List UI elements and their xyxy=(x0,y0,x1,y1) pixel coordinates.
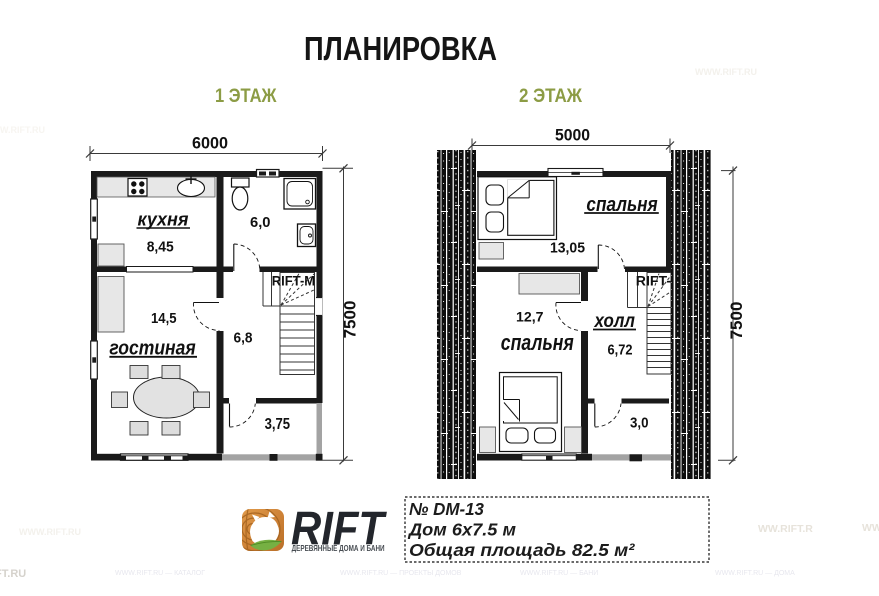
svg-text:6,8: 6,8 xyxy=(234,331,253,347)
svg-text:№ DM-13: № DM-13 xyxy=(409,499,484,519)
svg-text:Общая площадь 82.5 м²: Общая площадь 82.5 м² xyxy=(409,540,636,560)
svg-text:2 ЭТАЖ: 2 ЭТАЖ xyxy=(519,85,582,107)
svg-text:6,0: 6,0 xyxy=(250,215,271,231)
svg-text:спальня: спальня xyxy=(501,330,574,355)
svg-text:WWW.RIFT.RU — БАНИ: WWW.RIFT.RU — БАНИ xyxy=(520,570,598,577)
svg-text:RIFT-M: RIFT-M xyxy=(272,273,315,289)
svg-text:WWW.RIFT.RU — ДОМА: WWW.RIFT.RU — ДОМА xyxy=(715,570,795,577)
svg-text:W.RIFT.RU: W.RIFT.RU xyxy=(0,125,45,135)
svg-text:IFT.RU: IFT.RU xyxy=(0,568,26,580)
svg-text:13,05: 13,05 xyxy=(550,240,585,256)
svg-text:6,72: 6,72 xyxy=(608,342,633,358)
svg-text:7500: 7500 xyxy=(727,302,746,340)
svg-text:WW: WW xyxy=(862,522,879,534)
svg-text:кухня: кухня xyxy=(138,209,189,230)
svg-text:3,0: 3,0 xyxy=(630,416,649,432)
svg-text:Дом 6х7.5 м: Дом 6х7.5 м xyxy=(407,520,516,540)
svg-text:WWW.RIFT.RU — ПРОЕКТЫ ДОМОВ: WWW.RIFT.RU — ПРОЕКТЫ ДОМОВ xyxy=(340,570,462,577)
svg-text:ДЕРЕВЯННЫЕ ДОМА И БАНИ: ДЕРЕВЯННЫЕ ДОМА И БАНИ xyxy=(292,543,385,553)
svg-text:WWW.RIFT.RU: WWW.RIFT.RU xyxy=(19,527,81,537)
svg-text:5000: 5000 xyxy=(555,126,590,145)
svg-text:14,5: 14,5 xyxy=(151,311,177,327)
svg-text:1 ЭТАЖ: 1 ЭТАЖ xyxy=(215,85,277,107)
svg-text:ПЛАНИРОВКА: ПЛАНИРОВКА xyxy=(304,30,497,67)
svg-text:WWW.RIFT.RU — КАТАЛОГ: WWW.RIFT.RU — КАТАЛОГ xyxy=(115,570,205,577)
svg-text:8,45: 8,45 xyxy=(147,239,174,255)
svg-text:WW.RIFT.R: WW.RIFT.R xyxy=(758,523,813,535)
svg-text:7500: 7500 xyxy=(341,301,360,339)
svg-text:12,7: 12,7 xyxy=(516,309,544,325)
svg-text:6000: 6000 xyxy=(192,134,228,153)
svg-text:WWW.RIFT.RU: WWW.RIFT.RU xyxy=(695,67,757,77)
svg-text:3,75: 3,75 xyxy=(265,416,291,433)
